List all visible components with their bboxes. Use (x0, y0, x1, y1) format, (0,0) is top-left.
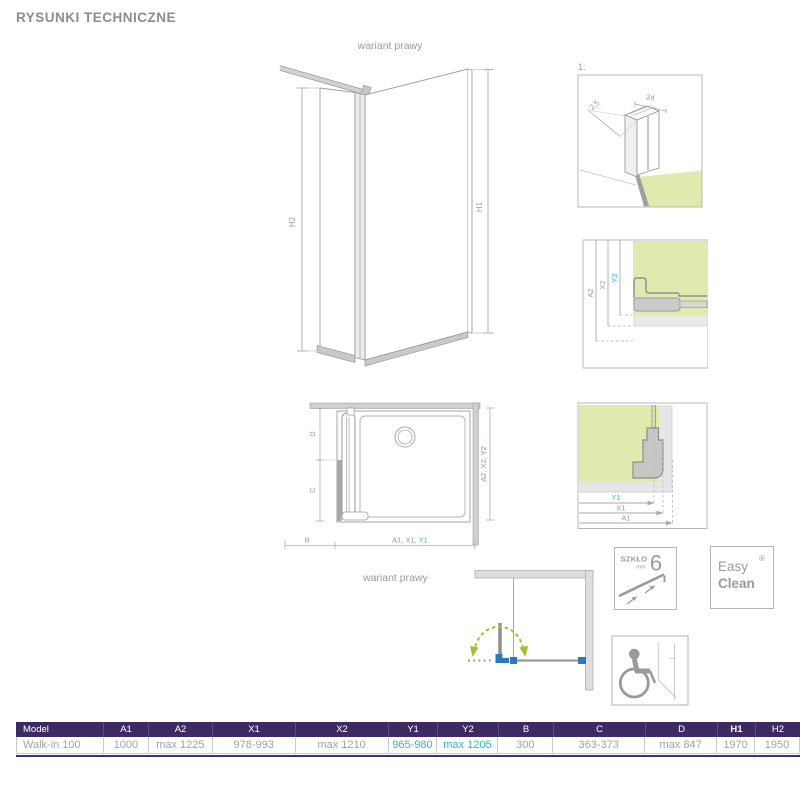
detail-number-label: 1. (578, 62, 586, 72)
dim-line-h1: H1 (473, 69, 494, 333)
cell-b: 300 (498, 737, 553, 754)
dim-label-x2: X2 (598, 280, 607, 289)
cell-h1: 1970 (717, 737, 755, 754)
dim-label-y2-cyan: Y2 (479, 446, 488, 455)
page-title: RYSUNKI TECHNICZNE (16, 10, 176, 25)
col-header-x1: X1 (212, 722, 295, 737)
cell-d: max 847 (645, 737, 717, 754)
dim-label-a1x1y1: A1, X1, Y1 (392, 536, 428, 545)
table-row: Walk-in 100 1000 max 1225 978-993 max 12… (16, 737, 800, 754)
dim-label-y1-cyan: Y1 (419, 536, 428, 545)
col-header-b: B (498, 722, 553, 737)
wall-and-floor (633, 241, 707, 326)
col-header-y1: Y1 (388, 722, 437, 737)
dim-label-c: C (308, 487, 317, 493)
col-header-c: C (553, 722, 645, 737)
profile-detail-drawing: 1. 24 2,5 (573, 58, 703, 210)
dim-label-a1: A1 (621, 514, 630, 523)
cell-x1: 978-993 (213, 737, 296, 754)
dim-line-h2: H2 (288, 88, 319, 351)
dim-label-y2: Y2 (610, 273, 619, 282)
bottom-corner-detail-drawing: Y1 X1 A1 (576, 400, 708, 530)
cell-a2: max 1225 (149, 737, 213, 754)
table-bottom-rule (16, 755, 800, 757)
easy-clean-badge: Easy ® Clean (710, 546, 774, 609)
glass-badge-unit: mm (636, 565, 646, 571)
cell-h2: 1950 (755, 737, 800, 754)
col-header-x2: X2 (295, 722, 388, 737)
main-perspective-drawing: H1 H2 (270, 60, 510, 382)
u-channel-profile (625, 105, 659, 177)
cell-x2: max 1210 (296, 737, 389, 754)
main-drawing-caption: wariant prawy (270, 40, 510, 52)
cell-a1: 1000 (104, 737, 149, 754)
plan-view-drawing: D C B A1, X1, Y1 A2, X2, Y2 (273, 393, 518, 558)
dim-line-d-c (316, 409, 337, 522)
dim-label-h1: H1 (475, 201, 484, 212)
main-glass-panel (365, 69, 472, 366)
wall-profile (355, 93, 365, 361)
col-header-a2: A2 (148, 722, 212, 737)
dim-label-h2: H2 (288, 216, 297, 227)
dim-label-d: D (308, 431, 317, 437)
cell-y2: max 1205 (437, 737, 498, 754)
col-header-h1: H1 (717, 722, 755, 737)
dim-label-a2x2: A2, X2, (479, 455, 488, 482)
col-header-y2: Y2 (437, 722, 498, 737)
dim-label-b: B (304, 536, 309, 545)
wheelchair-accessibility-badge (609, 633, 689, 709)
glass-thickness-badge: SZKŁO mm 6 (614, 547, 677, 610)
shower-tray (337, 411, 470, 522)
col-header-model: Model (16, 722, 103, 737)
dim-label-a2x2y2: A2, X2, Y2 (479, 446, 488, 482)
col-header-a1: A1 (103, 722, 148, 737)
easyclean-word1: Easy (718, 559, 748, 574)
side-glass-panel (317, 88, 355, 363)
cell-y1: 965-980 (389, 737, 438, 754)
top-corner-detail-drawing: A2 X2 Y2 (576, 238, 708, 370)
cell-c: 363-373 (553, 737, 645, 754)
dim-label-a2: A2 (586, 288, 595, 297)
swing-variant-drawing (428, 558, 613, 693)
walls (475, 571, 593, 691)
connectors (496, 654, 587, 664)
cell-model: Walk-in 100 (17, 737, 104, 754)
dim-label-x1: X1 (616, 504, 625, 513)
registered-mark: ® (759, 554, 765, 563)
table-header-row: Model A1 A2 X1 X2 Y1 Y2 B C D H1 H2 (16, 722, 800, 737)
glass-badge-value: 6 (650, 551, 662, 576)
glass-badge-brand: SZKŁO (621, 555, 648, 564)
easyclean-word2: Clean (718, 576, 755, 591)
dim-label-y1: Y1 (611, 493, 620, 502)
dim-line-bottom (285, 539, 475, 549)
col-header-h2: H2 (755, 722, 800, 737)
col-header-d: D (645, 722, 717, 737)
dimensions-table: Model A1 A2 X1 X2 Y1 Y2 B C D H1 H2 Walk… (16, 722, 800, 757)
dim-label-a1x1: A1, X1, (392, 536, 419, 545)
